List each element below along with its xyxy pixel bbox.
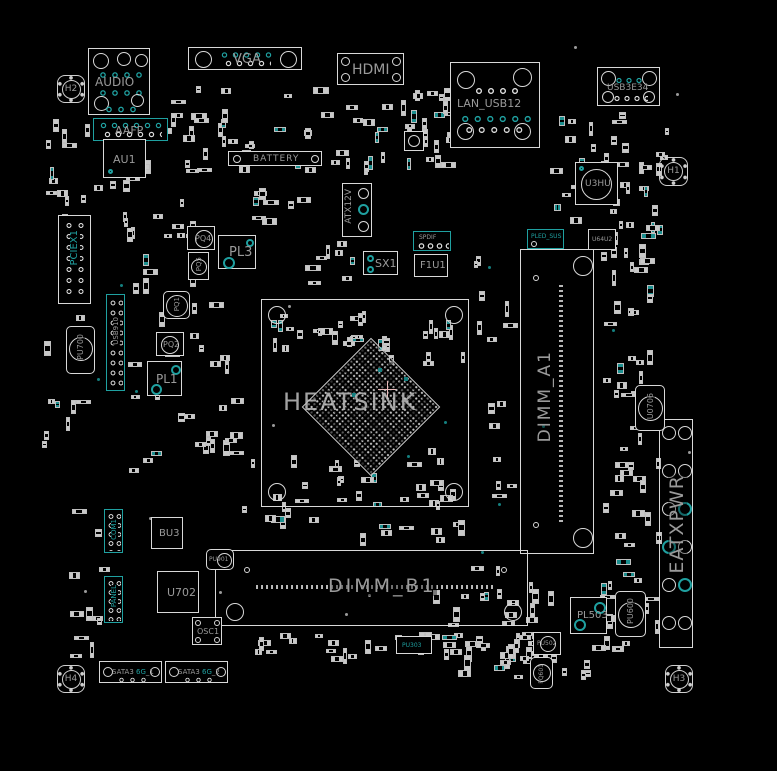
smd-part xyxy=(526,617,538,623)
smd-part xyxy=(143,254,149,267)
smd-pad xyxy=(451,650,454,654)
smd-pad xyxy=(172,122,175,126)
smd-pad xyxy=(152,452,155,455)
smd-part xyxy=(442,635,457,640)
smd-pad xyxy=(438,529,441,534)
audio-connector: AUDIO xyxy=(88,48,150,115)
heatsink-screw-circle xyxy=(268,483,286,501)
smd-pad xyxy=(283,509,285,512)
smd-pad xyxy=(322,113,326,117)
smd-pad xyxy=(54,120,59,123)
smd-pad xyxy=(178,234,180,237)
smd-pad xyxy=(128,229,132,233)
smd-part xyxy=(568,119,575,124)
sx1-teal-circle xyxy=(367,266,374,273)
smd-pad xyxy=(181,101,185,104)
smd-pad xyxy=(637,361,639,364)
smd-part xyxy=(591,144,596,153)
eatxpwr-pin-circle xyxy=(678,426,692,440)
smd-pad xyxy=(100,186,103,190)
smd-pad xyxy=(648,295,651,297)
smd-pad xyxy=(280,517,284,522)
dimm-pin-circle xyxy=(244,567,250,573)
smd-pad xyxy=(615,310,620,313)
smd-part xyxy=(562,193,571,197)
smd-pad xyxy=(204,450,209,453)
smd-pad xyxy=(186,165,189,167)
smd-pad xyxy=(641,481,645,484)
smd-pad xyxy=(84,637,88,640)
smd-pad xyxy=(641,361,643,364)
smd-pad xyxy=(134,284,138,287)
smd-part xyxy=(177,233,185,238)
smd-pad xyxy=(412,119,416,122)
smd-part xyxy=(309,517,319,523)
smd-pad xyxy=(51,168,54,171)
smd-pad xyxy=(181,204,183,206)
dimm-a1-label: DIMM_A1 xyxy=(537,350,554,442)
smd-pad xyxy=(622,534,625,538)
smd-pad xyxy=(459,521,463,525)
smd-pad xyxy=(443,636,447,639)
smd-pad xyxy=(622,394,626,396)
sata2-label-suffix: _2 xyxy=(212,668,220,676)
smd-pad xyxy=(240,399,243,403)
hole-label: H3 xyxy=(666,675,692,684)
smd-pad xyxy=(477,637,482,639)
smd-part xyxy=(436,537,445,543)
smd-pad xyxy=(132,396,134,398)
smd-part xyxy=(70,611,85,618)
smd-pad xyxy=(111,186,116,188)
smd-pad xyxy=(465,656,470,660)
smd-part xyxy=(617,363,624,374)
smd-part xyxy=(619,112,626,120)
smd-part xyxy=(262,218,277,225)
smd-pad xyxy=(666,132,669,134)
pu303-label: PU303 xyxy=(402,643,421,649)
smd-pad xyxy=(349,277,352,280)
smd-pad xyxy=(54,127,59,130)
smd-part xyxy=(640,480,646,493)
smd-pad xyxy=(252,145,255,147)
smd-part xyxy=(630,310,639,315)
smd-pad xyxy=(320,635,322,637)
smd-pad xyxy=(552,655,556,657)
smd-pad xyxy=(204,149,208,152)
motherboard-diagram: H2 H1 H3 H4 AUDIO AAFP AU1 xyxy=(0,0,777,771)
audio-jack-circle xyxy=(117,52,131,66)
usb-pin-row xyxy=(463,126,527,134)
smd-pad xyxy=(623,642,625,646)
smd-part xyxy=(289,638,297,644)
smd-part xyxy=(44,431,49,441)
smd-pad xyxy=(43,445,46,447)
smd-pad xyxy=(520,636,523,639)
smd-pad xyxy=(343,277,346,280)
smd-pad xyxy=(125,223,127,225)
mount-hole-h3: H3 xyxy=(665,665,693,693)
smd-pad xyxy=(611,616,614,621)
smd-pad xyxy=(45,342,50,346)
bu3-label: BU3 xyxy=(159,529,180,539)
smd-pad xyxy=(329,641,332,645)
battery-label: BATTERY xyxy=(253,155,299,164)
hdmi-label: HDMI xyxy=(352,63,390,77)
smd-pad xyxy=(77,316,79,320)
smd-pad xyxy=(634,477,638,481)
smd-pad xyxy=(629,463,633,465)
smd-pad xyxy=(621,448,623,450)
smd-pad xyxy=(281,525,285,528)
smd-part xyxy=(337,241,347,247)
pq1-mosfet: PQ1 xyxy=(163,291,190,319)
smd-pad xyxy=(255,192,258,195)
smd-pad xyxy=(361,542,365,545)
smd-part xyxy=(62,129,67,143)
smd-part xyxy=(133,283,139,294)
osc1-corner-circle xyxy=(195,637,201,643)
osc1-oscillator: OSC1 xyxy=(192,617,222,645)
smd-pad xyxy=(260,638,263,642)
smd-pad xyxy=(625,448,627,450)
pciex1-label: PCIEX1 xyxy=(70,230,80,266)
smd-pad xyxy=(475,262,477,264)
smd-part xyxy=(53,119,60,131)
pled-sus-header: PLED_SUS xyxy=(527,229,564,249)
via-dot xyxy=(498,503,501,506)
smd-pad xyxy=(654,598,658,600)
smd-pad xyxy=(662,153,664,156)
u702-label: U702 xyxy=(167,587,196,598)
smd-part xyxy=(245,144,255,148)
smd-part xyxy=(228,139,237,144)
smd-pad xyxy=(604,509,608,512)
smd-pad xyxy=(191,136,194,141)
smd-pad xyxy=(243,510,246,512)
smd-part xyxy=(554,204,561,211)
smd-pad xyxy=(640,253,645,257)
smd-pad xyxy=(380,525,383,528)
u0706-capacitor: U0706 xyxy=(635,385,665,431)
smd-part xyxy=(443,101,448,114)
smd-part xyxy=(183,135,195,142)
smd-part xyxy=(229,451,244,455)
smd-pad xyxy=(497,482,501,484)
smd-pad xyxy=(130,469,133,473)
smd-pad xyxy=(384,128,387,131)
smd-pad xyxy=(489,404,494,407)
smd-part xyxy=(99,567,110,572)
smd-pad xyxy=(559,169,563,173)
smd-pad xyxy=(137,363,140,367)
smd-part xyxy=(305,167,316,173)
smd-pad xyxy=(460,634,462,637)
smd-pad xyxy=(219,303,223,308)
smd-part xyxy=(110,181,117,190)
smd-pad xyxy=(146,165,149,170)
dimm-b1-slot: DIMM_B1 xyxy=(215,550,528,626)
audio-label: AUDIO xyxy=(95,76,134,88)
smd-pad xyxy=(608,379,610,382)
smd-part xyxy=(65,196,70,205)
smd-pad xyxy=(124,181,129,184)
smd-pad xyxy=(440,98,443,100)
smd-pad xyxy=(240,167,243,172)
via-dot xyxy=(97,378,100,381)
smd-pad xyxy=(618,364,623,367)
smd-part xyxy=(413,93,423,99)
smd-pad xyxy=(210,303,214,308)
smd-part xyxy=(407,158,411,170)
smd-pad xyxy=(494,458,496,461)
smd-pad xyxy=(653,206,658,209)
smd-pad xyxy=(223,137,225,140)
smd-pad xyxy=(639,441,641,444)
smd-part xyxy=(589,122,593,136)
smd-part xyxy=(514,639,519,653)
sata1-label-pre: SATA3 xyxy=(112,668,134,676)
smd-pad xyxy=(441,538,443,542)
pq2-label: PQ2 xyxy=(163,341,179,349)
pu901-label: PU901 xyxy=(209,557,228,563)
battery-holder: BATTERY xyxy=(228,151,322,166)
smd-pad xyxy=(347,159,349,162)
pu502-part: PU502 xyxy=(533,632,561,655)
spdif-header: SPDIF xyxy=(413,231,451,251)
smd-pad xyxy=(254,198,259,200)
sata-pin-row xyxy=(182,677,212,683)
sata2-label-6g: 6G xyxy=(202,668,212,676)
smd-pad xyxy=(98,619,101,621)
smd-part xyxy=(441,162,456,168)
smd-part xyxy=(184,414,195,419)
smd-pad xyxy=(609,587,612,589)
smd-pad xyxy=(605,323,609,326)
smd-pad xyxy=(432,529,435,534)
smd-part xyxy=(239,166,250,173)
smd-pad xyxy=(106,568,109,571)
smd-pad xyxy=(172,114,175,118)
smd-pad xyxy=(509,654,512,658)
smd-part xyxy=(331,160,340,166)
smd-pad xyxy=(444,102,447,105)
spdif-pin-row xyxy=(417,242,449,250)
smd-pad xyxy=(317,257,320,259)
smd-part xyxy=(620,447,628,451)
smd-part xyxy=(477,321,482,335)
smd-pad xyxy=(641,489,645,492)
smd-part xyxy=(190,333,200,340)
smd-pad xyxy=(144,279,148,283)
smd-part xyxy=(95,529,102,537)
smd-pad xyxy=(193,310,196,313)
smd-pad xyxy=(619,491,622,495)
smd-pad xyxy=(640,166,643,170)
smd-part xyxy=(274,127,286,132)
smd-part xyxy=(46,191,58,195)
smd-pad xyxy=(496,424,499,428)
smd-pad xyxy=(435,113,438,118)
smd-pad xyxy=(592,149,595,151)
smd-pad xyxy=(49,400,51,403)
smd-pad xyxy=(655,226,659,230)
smd-part xyxy=(487,337,497,342)
smd-pad xyxy=(454,523,456,526)
pin1-dot xyxy=(108,169,113,174)
smd-pad xyxy=(282,128,285,131)
smd-pad xyxy=(602,584,606,587)
smd-part xyxy=(401,100,407,116)
smd-pad xyxy=(165,235,167,237)
smd-part xyxy=(313,87,329,94)
smd-pad xyxy=(182,234,184,237)
smd-part xyxy=(185,160,190,168)
smd-pad xyxy=(498,458,500,461)
smd-pad xyxy=(527,648,531,652)
smd-pad xyxy=(354,106,357,109)
u702-chip: U702 xyxy=(157,571,199,613)
smd-pad xyxy=(281,634,284,638)
smd-part xyxy=(585,670,591,678)
smd-pad xyxy=(211,448,214,452)
smd-pad xyxy=(533,590,538,594)
sata-pin-row xyxy=(116,677,146,683)
smd-pad xyxy=(620,116,625,118)
smd-part xyxy=(326,245,330,260)
pled-pin-circle xyxy=(531,241,537,247)
smd-pad xyxy=(339,657,342,660)
smd-pad xyxy=(560,117,564,120)
smd-pad xyxy=(604,379,606,382)
smd-pad xyxy=(666,129,669,131)
smd-pad xyxy=(360,119,363,122)
smd-pad xyxy=(435,149,438,152)
smd-pad xyxy=(233,439,236,442)
pu901-part: PU901 xyxy=(206,549,234,570)
smd-pad xyxy=(72,144,76,147)
smd-pad xyxy=(144,270,148,273)
smd-pad xyxy=(427,158,429,162)
smd-pad xyxy=(475,265,477,267)
smd-pad xyxy=(437,538,439,542)
smd-part xyxy=(377,127,389,132)
smd-pad xyxy=(82,200,85,202)
smd-pad xyxy=(260,189,265,192)
smd-part xyxy=(479,291,485,301)
smd-pad xyxy=(498,402,500,406)
smd-pad xyxy=(590,131,592,135)
smd-pad xyxy=(86,125,89,128)
smd-pad xyxy=(568,194,570,196)
smd-pad xyxy=(622,121,626,123)
osc1-corner-circle xyxy=(214,620,220,626)
smd-pad xyxy=(653,212,658,215)
smd-part xyxy=(496,481,502,490)
heatsink-label: HEATSINK xyxy=(283,390,417,414)
smd-pad xyxy=(612,254,616,257)
smd-part xyxy=(559,116,565,126)
smd-pad xyxy=(631,311,633,314)
smd-part xyxy=(439,94,444,102)
smd-pad xyxy=(91,653,94,657)
smd-pad xyxy=(267,651,270,653)
smd-pad xyxy=(593,646,597,651)
smd-part xyxy=(90,642,95,658)
smd-part xyxy=(124,218,128,227)
smd-part xyxy=(348,654,357,659)
smd-part xyxy=(195,442,206,448)
smd-pad xyxy=(198,169,202,172)
smd-pad xyxy=(361,534,365,537)
hdmi-connector: HDMI xyxy=(337,53,404,85)
smd-pad xyxy=(436,156,440,159)
smd-pad xyxy=(191,334,194,339)
smd-pad xyxy=(191,283,195,286)
smd-pad xyxy=(586,674,590,676)
smd-pad xyxy=(219,132,222,135)
smd-pad xyxy=(445,656,448,659)
smd-pad xyxy=(382,159,384,162)
smd-part xyxy=(464,655,471,671)
smd-pad xyxy=(376,647,379,650)
smd-pad xyxy=(521,657,523,660)
smd-part xyxy=(489,423,500,429)
pq1-label: PQ1 xyxy=(174,297,181,311)
smd-part xyxy=(225,361,229,374)
smd-part xyxy=(630,262,634,273)
smd-pad xyxy=(507,661,510,664)
smd-pad xyxy=(226,439,229,442)
smd-pad xyxy=(502,495,506,497)
smd-pad xyxy=(612,142,616,144)
smd-pad xyxy=(223,110,226,114)
sata1-label-6g: 6G xyxy=(136,668,146,676)
smd-pad xyxy=(621,183,624,187)
smd-pad xyxy=(211,440,214,444)
smd-pad xyxy=(63,139,66,143)
smd-part xyxy=(94,185,104,191)
smd-pad xyxy=(383,647,386,650)
smd-pad xyxy=(560,122,564,125)
sata1-label-suffix: _1 xyxy=(146,668,154,676)
smd-part xyxy=(342,276,352,281)
atx12v-connector: ATX12V xyxy=(342,183,372,237)
smd-pad xyxy=(592,145,595,147)
smd-part xyxy=(427,91,438,96)
smd-pad xyxy=(340,251,342,255)
smd-pad xyxy=(508,485,511,487)
smd-part xyxy=(612,270,617,286)
smd-pad xyxy=(223,118,226,122)
smd-part xyxy=(614,301,621,314)
smd-pad xyxy=(585,661,589,664)
smd-pad xyxy=(639,434,641,437)
smd-pad xyxy=(351,258,354,260)
pu502-label: PU502 xyxy=(537,641,556,647)
smd-pad xyxy=(286,509,290,512)
smd-pad xyxy=(246,167,249,172)
smd-pad xyxy=(222,89,225,94)
smd-part xyxy=(626,183,630,195)
smd-part xyxy=(601,583,607,596)
smd-pad xyxy=(480,297,484,300)
smd-part xyxy=(46,140,50,149)
smd-pad xyxy=(354,655,356,658)
smd-pad xyxy=(266,516,269,521)
smd-pad xyxy=(45,432,48,435)
smd-pad xyxy=(616,463,620,466)
